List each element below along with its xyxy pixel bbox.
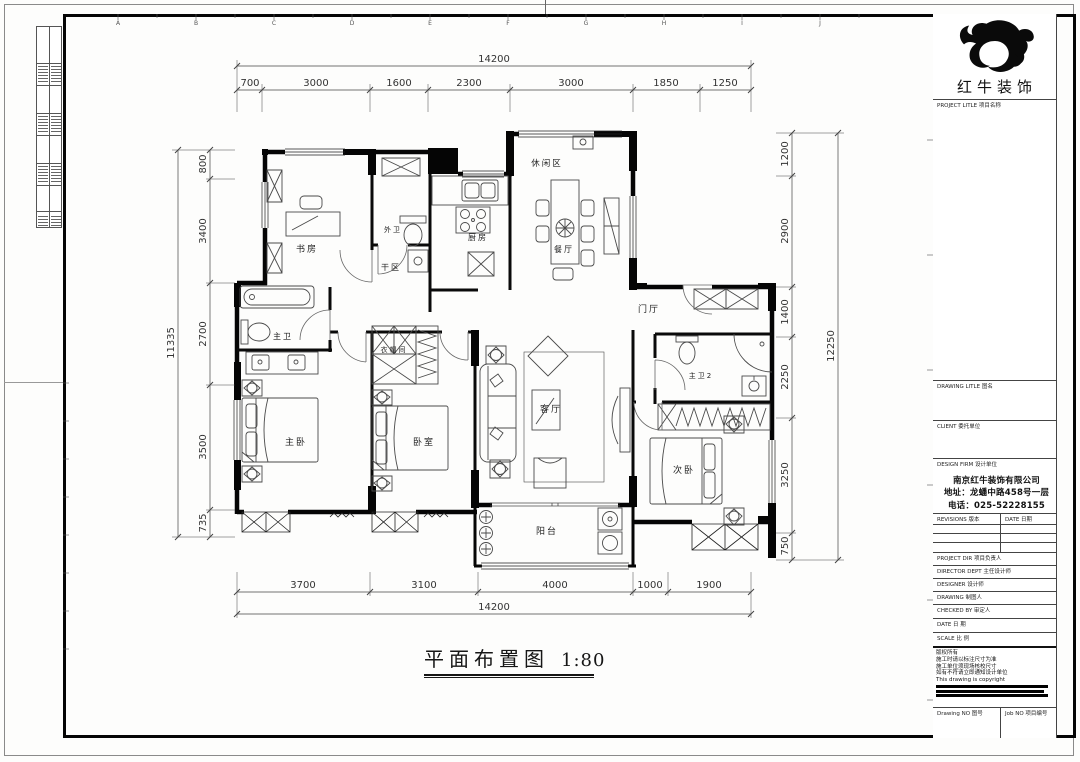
svg-text:3500: 3500 bbox=[198, 434, 209, 459]
designer-label: DESIGNER 设计师 bbox=[937, 582, 984, 588]
svg-text:3000: 3000 bbox=[558, 78, 583, 89]
director-row: DIRECTOR DEPT 主任设计师 bbox=[933, 565, 1056, 578]
svg-text:I: I bbox=[741, 20, 743, 27]
svg-text:700: 700 bbox=[240, 78, 259, 89]
drawing-caption-scale: 1:80 bbox=[561, 650, 605, 671]
redacted-text-bar bbox=[936, 694, 1048, 697]
drawing-caption-title: 平面布置图 bbox=[424, 647, 549, 671]
svg-text:E: E bbox=[428, 20, 432, 27]
svg-text:12250: 12250 bbox=[826, 330, 837, 362]
company-name: 南京红牛装饰有限公司 bbox=[937, 475, 1056, 487]
client-row: CLIENT 委托单位 bbox=[933, 420, 1056, 458]
checked-by-label: CHECKED BY 审定人 bbox=[937, 608, 990, 614]
date-row: DATE 日 期 bbox=[933, 618, 1056, 632]
grid-ticks bbox=[63, 14, 933, 700]
note-line-2: 施工时请以标注尺寸为准 bbox=[936, 657, 1053, 664]
svg-text:2700: 2700 bbox=[198, 321, 209, 346]
svg-text:1000: 1000 bbox=[637, 580, 662, 591]
drawing-caption-underline bbox=[424, 674, 594, 678]
svg-text:14200: 14200 bbox=[478, 54, 510, 65]
scale-label: SCALE 比 例 bbox=[937, 636, 969, 642]
svg-text:3100: 3100 bbox=[411, 580, 436, 591]
svg-text:3000: 3000 bbox=[303, 78, 328, 89]
room-labels: 书房 外卫 干区 厨房 休闲区 餐厅 门厅 主卫 衣帽间 主卧 卧室 客厅 主卫… bbox=[273, 158, 713, 537]
checked-by-row: CHECKED BY 审定人 bbox=[933, 604, 1056, 618]
svg-text:750: 750 bbox=[780, 536, 791, 555]
svg-text:1400: 1400 bbox=[780, 299, 791, 324]
room-label-living: 客厅 bbox=[540, 403, 562, 415]
date-label: DATE 日 期 bbox=[937, 622, 966, 628]
svg-text:H: H bbox=[662, 20, 667, 27]
svg-text:14200: 14200 bbox=[478, 602, 510, 613]
company-info: 南京红牛装饰有限公司 地址：龙蟠中路458号一层 电话：025-52228155 bbox=[937, 475, 1056, 512]
svg-text:4000: 4000 bbox=[542, 580, 567, 591]
svg-text:735: 735 bbox=[198, 513, 209, 532]
note-line-1: 版权所有 bbox=[936, 650, 1053, 657]
drawing-title-row: DRAWING LITLE 图名 bbox=[933, 380, 1056, 420]
job-no-label: Job NO 项目编号 bbox=[1005, 709, 1047, 717]
drawing-no-divider bbox=[1000, 707, 1001, 738]
svg-text:800: 800 bbox=[198, 154, 209, 173]
date-column-label: DATE 日期 bbox=[1005, 515, 1032, 523]
svg-text:3400: 3400 bbox=[198, 218, 209, 243]
designer-row: DESIGNER 设计师 bbox=[933, 578, 1056, 591]
project-title-label: PROJECT LITLE 项目名称 bbox=[937, 103, 1001, 109]
revisions-label: REVISIONS 版本 bbox=[937, 517, 979, 523]
furniture bbox=[240, 136, 772, 556]
svg-text:A: A bbox=[116, 20, 121, 27]
redacted-text-bar bbox=[936, 690, 1044, 693]
svg-text:2900: 2900 bbox=[780, 218, 791, 243]
drawing-no-label: Drawing NO 图号 bbox=[937, 711, 983, 717]
note-line-5: This drawing is copyright bbox=[936, 677, 1053, 684]
room-label-dry-area: 干区 bbox=[381, 263, 401, 272]
room-label-foyer: 门厅 bbox=[638, 303, 660, 315]
doors bbox=[300, 245, 712, 430]
revision-table-divider bbox=[1000, 513, 1001, 552]
room-label-bath2: 主卫2 bbox=[689, 371, 713, 380]
room-label-dining: 餐厅 bbox=[554, 245, 574, 254]
project-dir-label: PROJECT DIR 项目负责人 bbox=[937, 556, 1001, 562]
svg-text:1850: 1850 bbox=[653, 78, 678, 89]
svg-text:F: F bbox=[506, 20, 510, 27]
drawing-by-row: DRAWING 制图人 bbox=[933, 591, 1056, 604]
room-label-balcony: 阳台 bbox=[536, 525, 558, 537]
room-label-bedroom2: 次卧 bbox=[673, 464, 695, 476]
interior-walls bbox=[237, 152, 772, 512]
bay-windows bbox=[242, 512, 758, 550]
company-phone: 电话：025-52228155 bbox=[937, 500, 1056, 512]
logo-company-name: 红牛装饰 bbox=[933, 76, 1056, 97]
project-title-row: PROJECT LITLE 项目名称 bbox=[933, 99, 1056, 380]
note-line-4: 如有不符请立即通知设计单位 bbox=[936, 670, 1053, 677]
svg-text:3250: 3250 bbox=[780, 462, 791, 487]
revisions-header-row: REVISIONS 版本 DATE 日期 bbox=[933, 513, 1056, 524]
logo-area: 红牛装饰 bbox=[933, 14, 1056, 99]
room-label-kitchen: 厨房 bbox=[468, 232, 488, 242]
wall-columns bbox=[234, 131, 776, 558]
drawing-sheet: A B C D E F G H I J bbox=[0, 0, 1080, 762]
bull-logo-icon bbox=[952, 17, 1038, 77]
project-dir-row: PROJECT DIR 项目负责人 bbox=[933, 552, 1056, 565]
room-label-closet: 衣帽间 bbox=[381, 345, 408, 354]
client-label: CLIENT 委托单位 bbox=[937, 424, 980, 430]
room-label-master-bath: 主卫 bbox=[273, 331, 293, 341]
scale-row: SCALE 比 例 bbox=[933, 632, 1056, 646]
room-label-master-bedroom: 主卧 bbox=[285, 436, 307, 448]
nightstand-symbols bbox=[242, 346, 744, 525]
svg-text:2250: 2250 bbox=[780, 364, 791, 389]
director-label: DIRECTOR DEPT 主任设计师 bbox=[937, 569, 1011, 575]
design-firm-label: DESIGN FIRM 设计单位 bbox=[937, 462, 997, 468]
svg-text:3700: 3700 bbox=[290, 580, 315, 591]
svg-text:1900: 1900 bbox=[696, 580, 721, 591]
drawing-title-label: DRAWING LITLE 图名 bbox=[937, 384, 993, 390]
svg-text:1200: 1200 bbox=[780, 141, 791, 166]
svg-text:11335: 11335 bbox=[166, 327, 177, 359]
room-label-study: 书房 bbox=[296, 243, 318, 255]
svg-text:1250: 1250 bbox=[712, 78, 737, 89]
svg-text:J: J bbox=[818, 20, 821, 27]
drawing-no-row: Drawing NO 图号 Job NO 项目编号 bbox=[933, 707, 1056, 738]
company-address: 地址：龙蟠中路458号一层 bbox=[937, 487, 1056, 499]
revision-row-2 bbox=[933, 533, 1056, 542]
room-label-leisure: 休闲区 bbox=[531, 158, 563, 169]
svg-text:C: C bbox=[272, 20, 276, 27]
svg-text:G: G bbox=[584, 20, 589, 27]
revision-row-3 bbox=[933, 542, 1056, 552]
drawing-caption: 平面布置图1:80 bbox=[424, 643, 684, 672]
title-block: 红牛装饰 PROJECT LITLE 项目名称 DRAWING LITLE 图名… bbox=[933, 14, 1057, 738]
svg-text:1600: 1600 bbox=[386, 78, 411, 89]
design-firm-row: DESIGN FIRM 设计单位 南京红牛装饰有限公司 地址：龙蟠中路458号一… bbox=[933, 458, 1056, 513]
revision-row-1 bbox=[933, 524, 1056, 533]
drawing-by-label: DRAWING 制图人 bbox=[937, 595, 982, 601]
svg-text:D: D bbox=[350, 20, 355, 27]
grid-letters: A B C D E F G H I J bbox=[116, 20, 821, 27]
notes-block: 版权所有 施工时请以标注尺寸为准 施工单位须现场核校尺寸 如有不符请立即通知设计… bbox=[933, 646, 1056, 707]
svg-text:B: B bbox=[194, 20, 198, 27]
room-label-bedroom: 卧室 bbox=[413, 436, 435, 448]
redacted-text-bar bbox=[936, 685, 1048, 688]
room-label-outer-bath: 外卫 bbox=[384, 225, 402, 234]
svg-text:2300: 2300 bbox=[456, 78, 481, 89]
